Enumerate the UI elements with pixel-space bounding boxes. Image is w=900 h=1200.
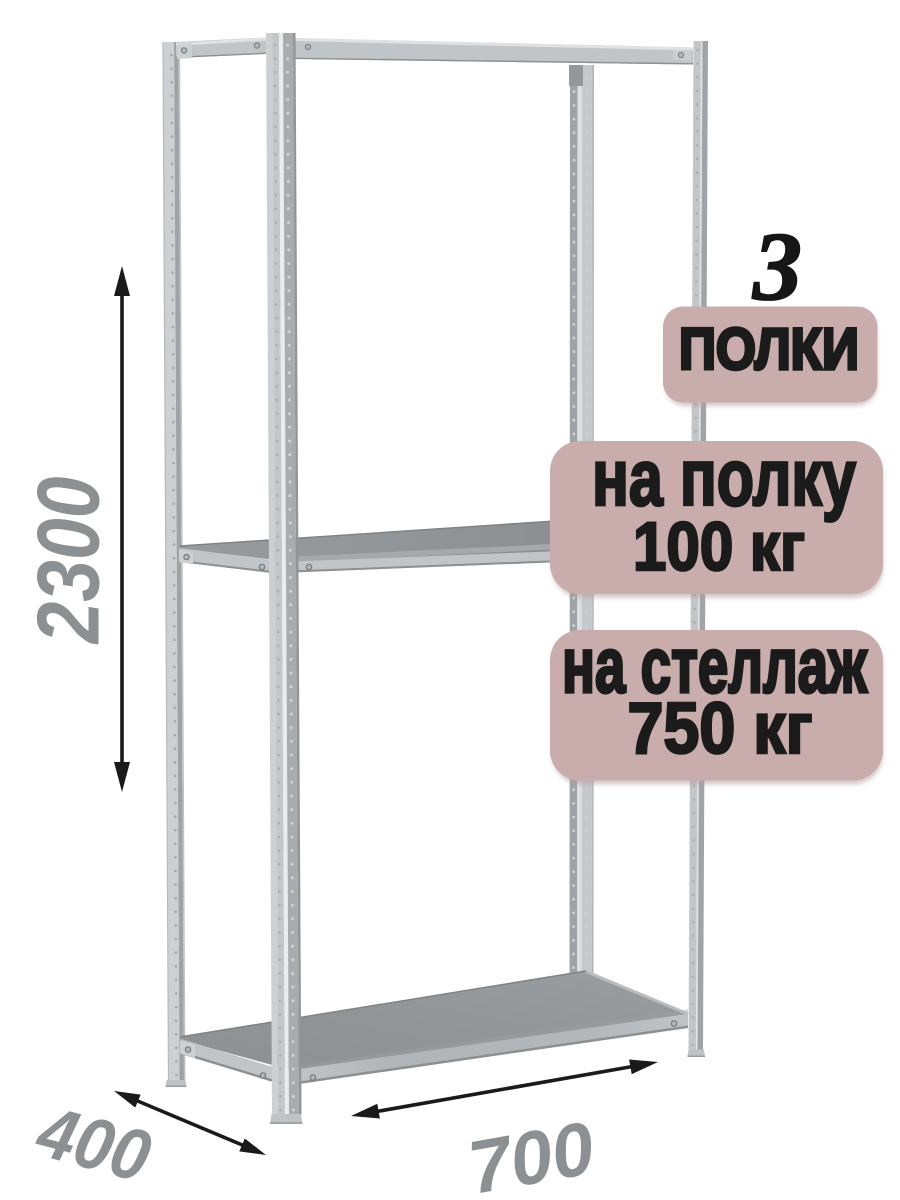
svg-text:3: 3 [752,213,802,321]
svg-text:750 кг: 750 кг [628,689,813,769]
svg-text:100 кг: 100 кг [633,508,805,585]
svg-text:ПОЛКИ: ПОЛКИ [679,317,859,382]
svg-text:2300: 2300 [20,477,118,646]
